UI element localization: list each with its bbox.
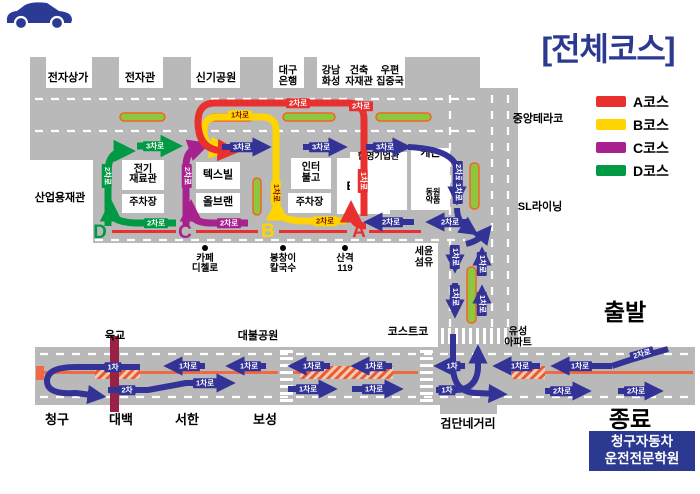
legend-item: A코스 xyxy=(596,90,669,113)
red-lane-line xyxy=(196,230,258,233)
legend-label: D코스 xyxy=(633,161,669,181)
crosswalk xyxy=(440,328,512,344)
end-label: 종료 xyxy=(609,400,651,434)
legend: A코스B코스C코스D코스 xyxy=(596,90,669,182)
red-lane-line xyxy=(112,230,176,233)
road-end-cap xyxy=(36,366,44,380)
median-strip xyxy=(376,113,431,121)
road-network xyxy=(0,0,700,494)
legend-label: A코스 xyxy=(633,92,669,112)
legend-swatch xyxy=(596,165,626,176)
school-name-line1: 청구자동차 xyxy=(589,434,695,451)
median-strip xyxy=(253,178,261,215)
median-strip xyxy=(120,113,165,121)
legend-swatch xyxy=(596,119,626,130)
median-strip xyxy=(470,163,479,209)
legend-label: B코스 xyxy=(633,115,669,135)
legend-item: B코스 xyxy=(596,113,669,136)
course-map-stage: 전기 재료관주차장텍스빌올브랜인터 불고주차장EXCO한영기업관케논 전자상가전… xyxy=(0,0,700,494)
start-label: 출발 xyxy=(604,293,646,327)
road-block xyxy=(92,57,119,88)
median-strip xyxy=(467,267,476,323)
road xyxy=(440,405,497,414)
legend-swatch xyxy=(596,142,626,153)
center-hatch-zone xyxy=(300,366,393,379)
crosswalk xyxy=(420,348,433,405)
center-hatch-zone xyxy=(512,366,545,379)
road-block xyxy=(240,57,273,88)
overpass-bar xyxy=(110,336,119,412)
legend-item: C코스 xyxy=(596,136,669,159)
driving-school-box: 청구자동차 운전전문학원 xyxy=(589,431,695,471)
legend-label: C코스 xyxy=(633,138,669,158)
legend-item: D코스 xyxy=(596,159,669,182)
road-block xyxy=(405,57,480,88)
road xyxy=(30,88,480,160)
road-block xyxy=(163,57,191,88)
red-lane-line xyxy=(279,230,347,233)
page-title: [전체코스] xyxy=(520,24,696,70)
legend-swatch xyxy=(596,96,626,107)
school-name-line2: 운전전문학원 xyxy=(589,451,695,468)
car-icon xyxy=(0,0,78,31)
road-block xyxy=(30,57,46,88)
median-strip xyxy=(283,113,335,121)
center-line xyxy=(44,371,278,374)
road-block xyxy=(304,57,317,88)
crosswalk xyxy=(280,348,293,405)
red-lane-line xyxy=(369,230,421,233)
median-strip xyxy=(210,114,253,121)
